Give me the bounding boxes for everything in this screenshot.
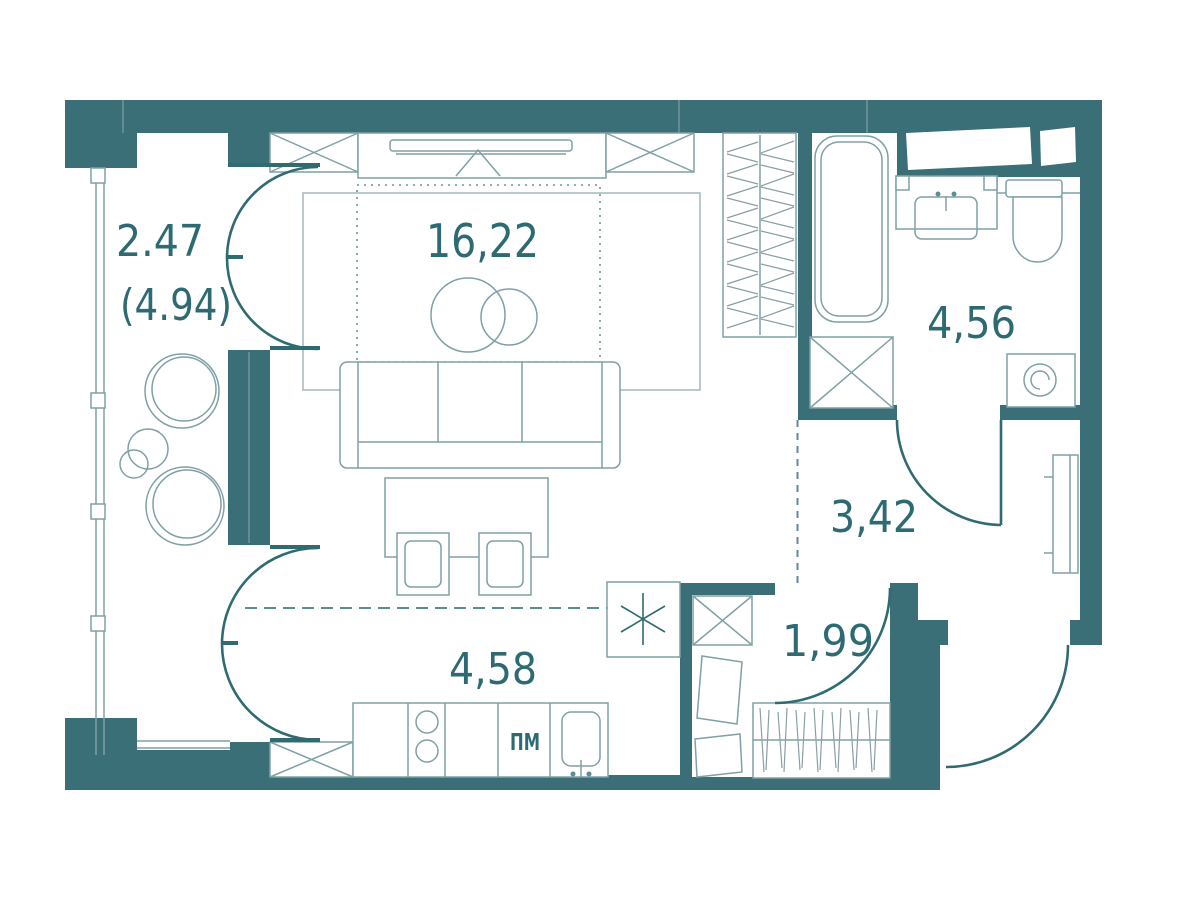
toilet-bowl	[1013, 197, 1062, 262]
window-icon	[906, 127, 1032, 170]
dishwasher-label: ПМ	[510, 730, 540, 756]
wall-closet-top	[692, 583, 775, 595]
balcony-chair	[146, 467, 224, 545]
faucet-dot	[571, 772, 576, 777]
window-icon	[1040, 127, 1076, 166]
faucet-dot	[952, 192, 957, 197]
living-room-area-label: 16,22	[426, 214, 539, 268]
layout-zone-dotted	[357, 185, 600, 362]
balcony-door-arc	[227, 258, 318, 349]
living-room	[270, 133, 796, 595]
washing-machine	[1007, 354, 1075, 407]
wall-panel	[1053, 455, 1078, 573]
vanity-end	[896, 176, 909, 190]
wall-vestibule-stub	[918, 620, 948, 645]
floor-plan-drawing: 2.47 (4.94) 16,22 4,56 3,42 4,58 1,99 ПМ	[0, 0, 1200, 900]
glazing-mullion	[91, 504, 105, 519]
wall-entry-notch	[1070, 620, 1102, 645]
glazing-mullion	[91, 393, 105, 408]
wall-corner-bottom-left	[65, 718, 137, 790]
hallway-area-label: 3,42	[830, 492, 918, 543]
balcony-door-arc	[222, 548, 318, 644]
wall-closet-right	[890, 583, 918, 790]
wall-balcony-stub-top	[228, 133, 270, 164]
sofa	[340, 362, 620, 468]
wall-right	[1080, 133, 1102, 645]
balcony-chair-inner	[153, 470, 221, 538]
balcony-area-label: 2.47	[116, 216, 204, 267]
glazing-mullion	[91, 616, 105, 631]
wall-vestibule	[918, 645, 940, 790]
closet-area-label: 1,99	[782, 616, 874, 667]
balcony-door-arc	[222, 644, 318, 740]
faucet-dot	[936, 192, 941, 197]
balcony-door-arc	[227, 167, 318, 258]
vanity-end	[984, 176, 997, 190]
entry-door-arc	[946, 645, 1068, 767]
glazing-mullion	[91, 168, 105, 183]
kitchen-area-label: 4,58	[449, 644, 537, 695]
balcony-chair-inner	[152, 357, 216, 421]
balcony-total-area-label: (4.94)	[120, 280, 232, 331]
shoe-cabinet	[695, 734, 742, 777]
wall-closet-left	[680, 583, 692, 790]
shoe-cabinet	[697, 656, 742, 724]
bathroom-area-label: 4,56	[927, 298, 1016, 349]
balcony-chair	[145, 354, 219, 428]
wall-bottom-closet	[692, 777, 940, 790]
ceiling-lamp	[481, 289, 537, 345]
floor-plan-page: 2.47 (4.94) 16,22 4,56 3,42 4,58 1,99 ПМ	[0, 0, 1200, 900]
faucet-dot	[587, 772, 592, 777]
bathtub	[815, 136, 888, 322]
toilet-tank	[1006, 180, 1062, 197]
wall-corner-top-left	[65, 100, 137, 168]
wall-top	[65, 100, 897, 133]
